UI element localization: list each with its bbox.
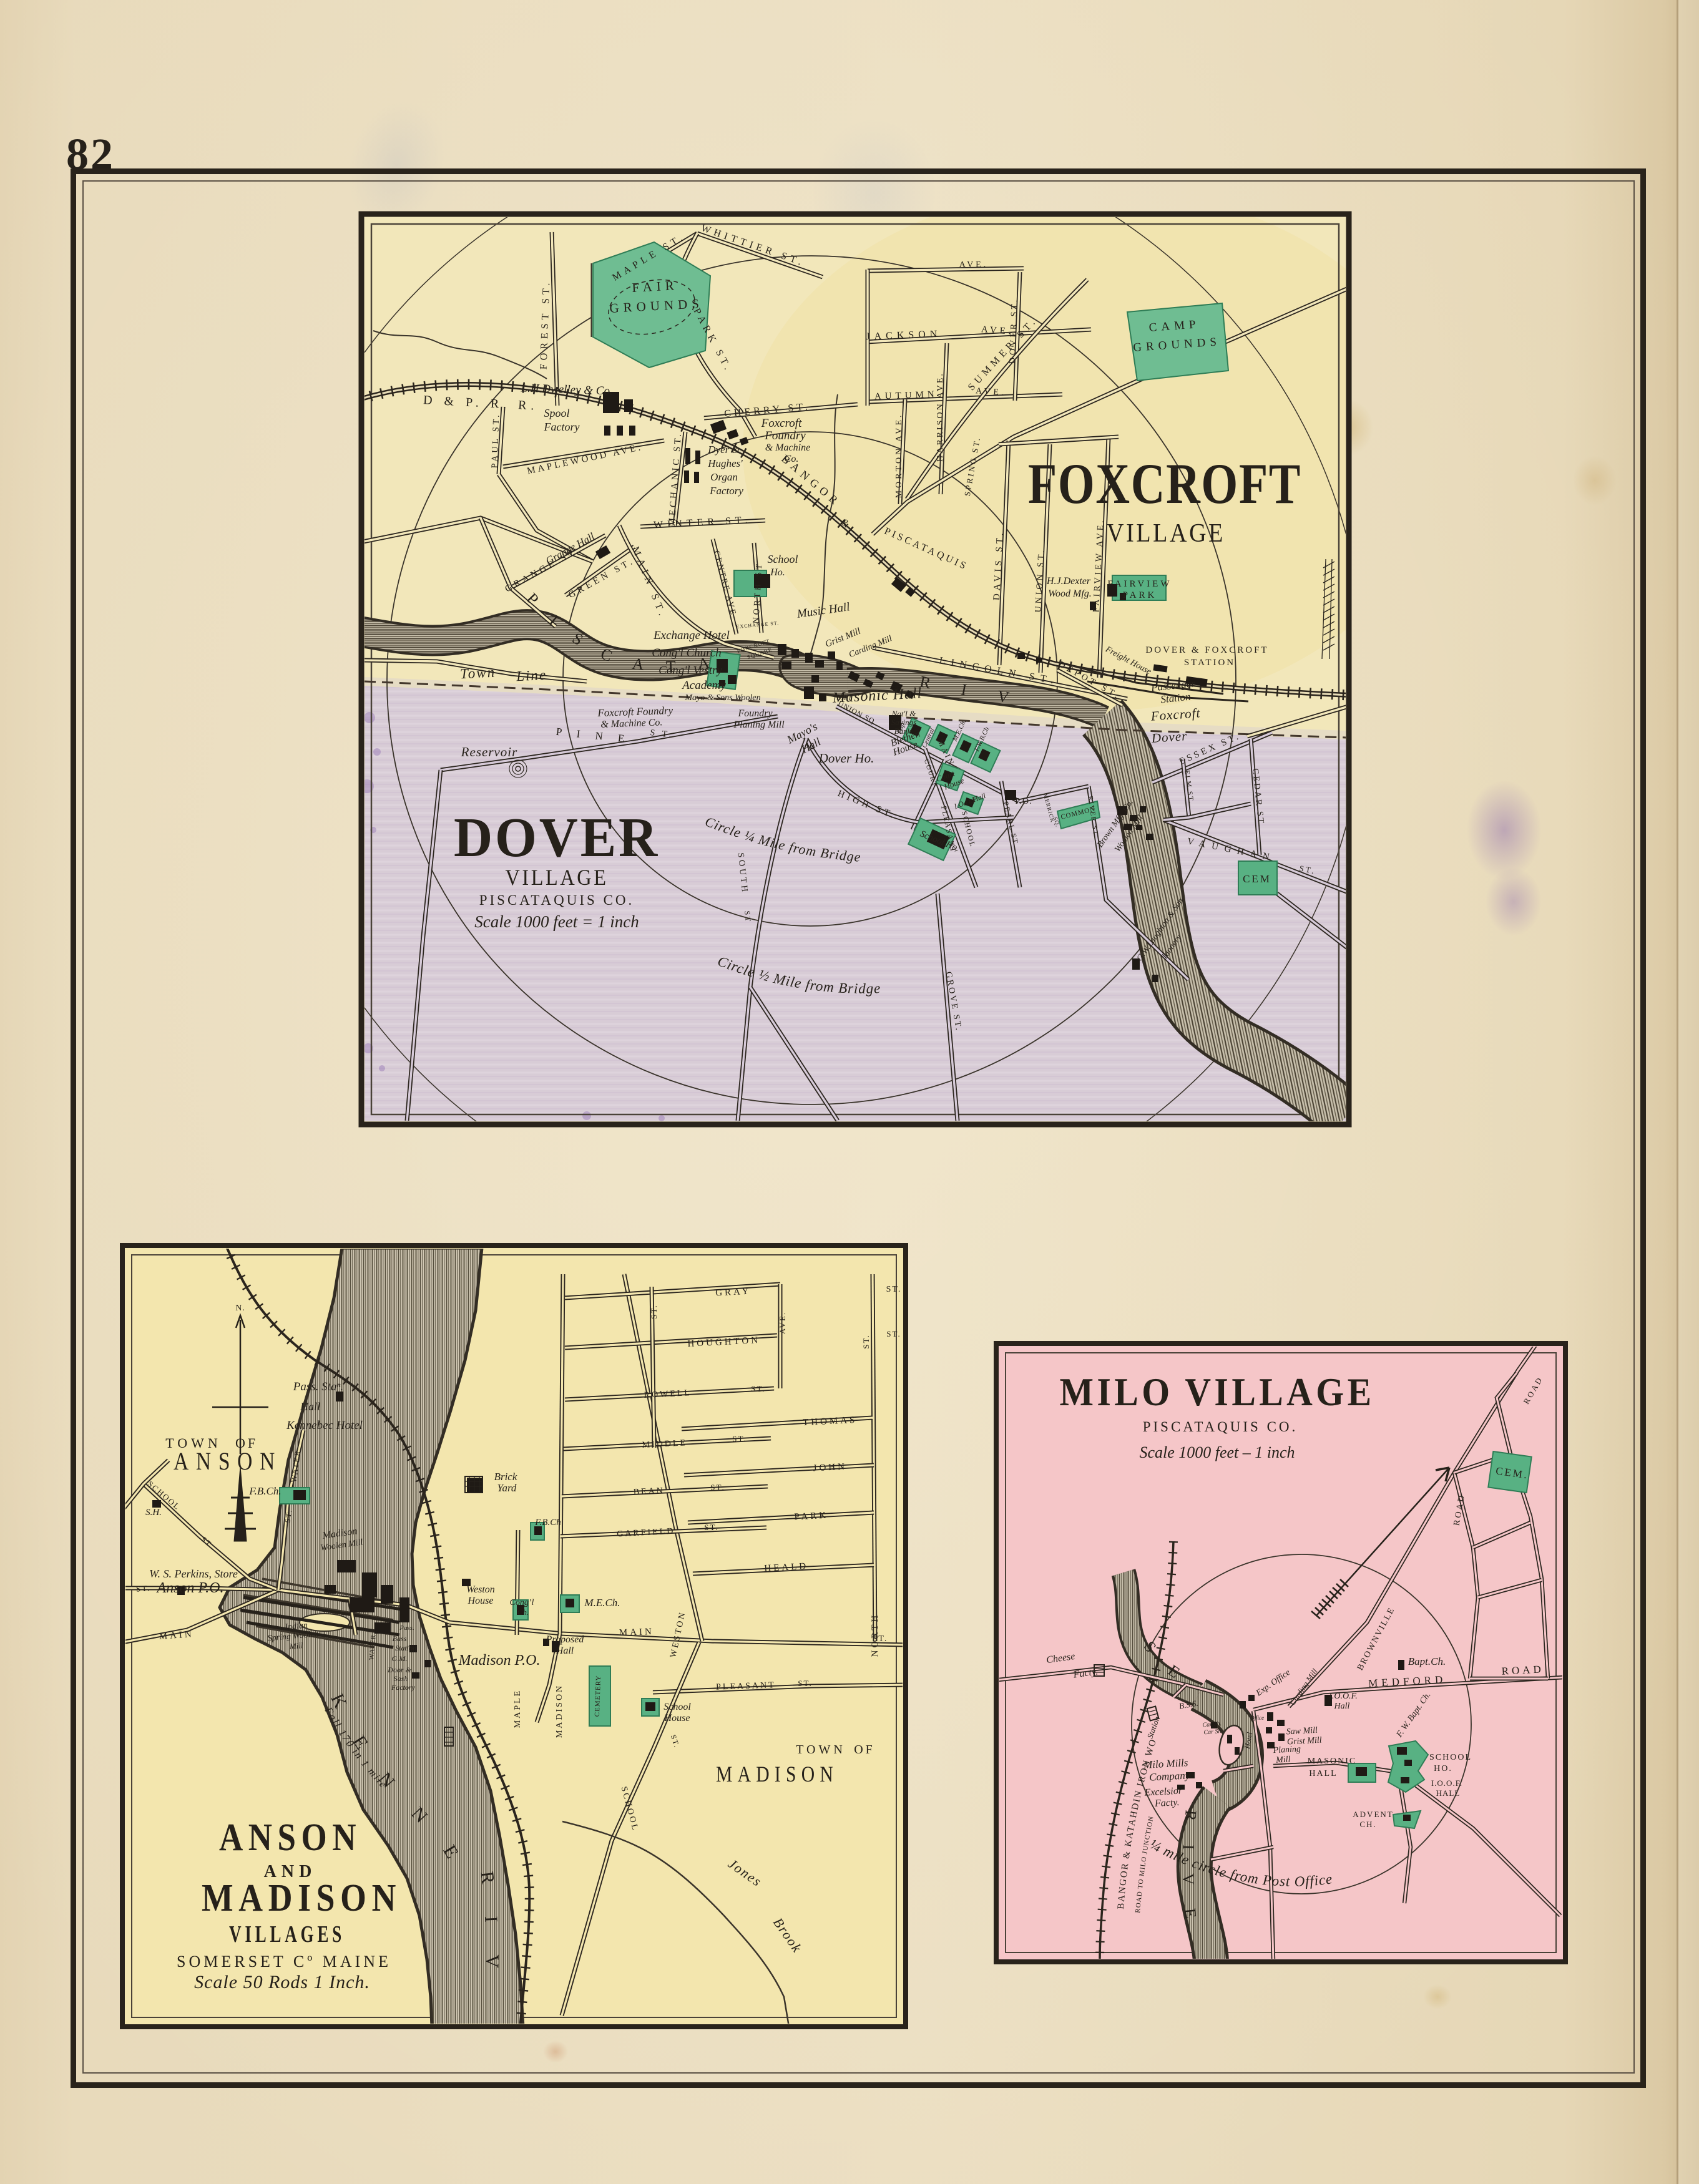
svg-text:CEMETERY: CEMETERY — [594, 1675, 602, 1717]
svg-text:AVE.: AVE. — [778, 1312, 787, 1334]
svg-text:Cong’l: Cong’l — [510, 1598, 534, 1607]
svg-text:Pass. Staⁿ.: Pass. Staⁿ. — [293, 1380, 343, 1393]
svg-text:HALL: HALL — [1436, 1788, 1461, 1798]
svg-text:AVE.: AVE. — [959, 260, 988, 270]
svg-text:JOHN: JOHN — [813, 1462, 847, 1474]
svg-text:MADISON: MADISON — [202, 1877, 401, 1919]
svg-text:Nat'l &: Nat'l & — [891, 709, 916, 718]
svg-text:STATION: STATION — [1184, 658, 1235, 668]
svg-text:ST: ST — [743, 910, 753, 924]
svg-text:DOVER & FOXCROFT: DOVER & FOXCROFT — [1145, 645, 1268, 655]
svg-text:ST.: ST. — [886, 1329, 901, 1338]
svg-text:Station: Station — [395, 1644, 416, 1652]
svg-text:Ho.: Ho. — [770, 567, 785, 578]
svg-text:OF: OF — [854, 1743, 875, 1757]
svg-text:P.O.: P.O. — [1015, 797, 1032, 806]
svg-text:CEM: CEM — [1243, 873, 1271, 885]
svg-text:G.M.: G.M. — [392, 1654, 408, 1663]
svg-text:Foundry: Foundry — [764, 429, 806, 442]
svg-text:Saw Mill: Saw Mill — [1286, 1726, 1318, 1737]
svg-text:Door &: Door & — [387, 1665, 411, 1674]
svg-text:ANSON: ANSON — [174, 1447, 282, 1475]
svg-text:Yard: Yard — [497, 1482, 517, 1494]
svg-text:ST.: ST. — [861, 1334, 871, 1348]
svg-text:Factory: Factory — [544, 421, 580, 433]
svg-text:Planing Mill: Planing Mill — [733, 719, 785, 730]
svg-text:Exchange Hotel: Exchange Hotel — [653, 629, 730, 642]
svg-text:I.O.O.F.: I.O.O.F. — [1431, 1778, 1462, 1788]
svg-text:FAIRVIEW: FAIRVIEW — [1107, 579, 1172, 589]
svg-text:Bass: Bass — [393, 1634, 407, 1643]
svg-text:Scale 1000 feet = 1 inch: Scale 1000 feet = 1 inch — [474, 912, 639, 931]
svg-text:ST.: ST. — [710, 1483, 725, 1492]
svg-text:Ch.: Ch. — [517, 1607, 529, 1617]
svg-text:Mill: Mill — [288, 1640, 303, 1651]
svg-text:Organ: Organ — [710, 471, 738, 483]
svg-text:ANSON: ANSON — [219, 1816, 361, 1859]
svg-text:Dyer &: Dyer & — [707, 444, 740, 456]
svg-text:Dover: Dover — [1150, 728, 1188, 746]
svg-text:Town: Town — [459, 665, 496, 682]
svg-text:Office: Office — [1250, 1715, 1264, 1721]
svg-text:Foundry: Foundry — [737, 708, 773, 719]
svg-text:PISCATAQUIS CO.: PISCATAQUIS CO. — [1143, 1419, 1298, 1435]
svg-text:Wood Mfg.: Wood Mfg. — [1048, 588, 1092, 599]
svg-text:PARK: PARK — [794, 1511, 828, 1523]
svg-text:ST.: ST. — [136, 1583, 151, 1593]
svg-text:& Machine: & Machine — [765, 442, 810, 453]
svg-text:FOXCROFT: FOXCROFT — [1028, 452, 1301, 515]
svg-text:DOVER: DOVER — [454, 807, 660, 869]
svg-text:Hall: Hall — [1334, 1702, 1350, 1711]
svg-text:Company: Company — [1149, 1769, 1191, 1783]
svg-text:Facty.: Facty. — [1154, 1797, 1180, 1809]
svg-text:VILLAGE: VILLAGE — [506, 865, 609, 890]
svg-text:Sash: Sash — [394, 1674, 408, 1683]
svg-text:SOMERSET Cº MAINE: SOMERSET Cº MAINE — [177, 1952, 391, 1971]
svg-text:F.B.Ch.: F.B.Ch. — [248, 1485, 281, 1497]
svg-text:N.: N. — [235, 1304, 245, 1313]
svg-text:Bapt.Ch.: Bapt.Ch. — [1408, 1655, 1446, 1667]
svg-text:Reservoir: Reservoir — [461, 744, 518, 759]
svg-text:Mayo & Sons Woolen: Mayo & Sons Woolen — [684, 693, 760, 703]
svg-text:Brick: Brick — [494, 1471, 517, 1483]
svg-text:MADISON: MADISON — [716, 1762, 838, 1787]
svg-text:VILLAGE: VILLAGE — [1107, 519, 1225, 548]
svg-text:Excelsior: Excelsior — [1143, 1785, 1183, 1798]
svg-text:Foxcroft: Foxcroft — [761, 417, 802, 430]
svg-text:S.H.: S.H. — [145, 1508, 162, 1518]
svg-text:School: School — [663, 1702, 691, 1712]
svg-text:Anson P.O.: Anson P.O. — [156, 1580, 224, 1596]
svg-text:Madison P.O.: Madison P.O. — [458, 1652, 541, 1669]
svg-text:Planing: Planing — [1272, 1745, 1301, 1755]
svg-text:CH.: CH. — [1359, 1820, 1376, 1829]
svg-text:HARRISON AVE.: HARRISON AVE. — [936, 372, 945, 462]
svg-text:House: House — [468, 1596, 494, 1606]
svg-text:FAIR: FAIR — [632, 278, 678, 295]
svg-text:M.E.Ch.: M.E.Ch. — [584, 1597, 620, 1609]
svg-text:PAUL ST.: PAUL ST. — [490, 412, 501, 469]
svg-text:House: House — [664, 1713, 690, 1723]
svg-text:W. S. Perkins, Store: W. S. Perkins, Store — [149, 1567, 238, 1580]
svg-text:Mill: Mill — [1275, 1755, 1291, 1765]
svg-text:Hughes': Hughes' — [707, 457, 743, 469]
svg-text:TOWN: TOWN — [796, 1743, 846, 1757]
svg-text:ROAD: ROAD — [1501, 1663, 1544, 1677]
svg-text:School: School — [768, 553, 798, 565]
svg-text:Cong'l Vestry: Cong'l Vestry — [659, 664, 722, 677]
svg-text:MASONIC: MASONIC — [1308, 1757, 1357, 1766]
svg-text:Scale 50 Rods 1 Inch.: Scale 50 Rods 1 Inch. — [194, 1972, 370, 1992]
svg-text:SCHOOL: SCHOOL — [1429, 1753, 1472, 1762]
svg-text:VILLAGES: VILLAGES — [229, 1921, 345, 1948]
svg-text:Pass.: Pass. — [399, 1624, 414, 1632]
svg-text:I.O.O.F.: I.O.O.F. — [1328, 1692, 1358, 1701]
svg-text:ST.: ST. — [732, 1434, 747, 1443]
svg-text:Milo Mills: Milo Mills — [1143, 1757, 1189, 1771]
svg-text:Weston: Weston — [466, 1584, 495, 1595]
svg-text:Cong'l Church: Cong'l Church — [652, 646, 722, 660]
svg-text:HALL: HALL — [1309, 1769, 1337, 1778]
svg-text:Hall: Hall — [300, 1400, 320, 1413]
svg-text:Factory: Factory — [391, 1683, 416, 1692]
svg-text:Academy: Academy — [681, 679, 726, 692]
svg-text:PARK: PARK — [1123, 590, 1157, 600]
svg-text:MAPLE: MAPLE — [513, 1689, 522, 1728]
svg-text:ADVENT: ADVENT — [1353, 1810, 1393, 1819]
svg-text:Kennebec Hotel: Kennebec Hotel — [286, 1419, 363, 1432]
svg-text:ST.: ST. — [704, 1523, 718, 1532]
svg-text:Scale 1000 feet – 1 inch: Scale 1000 feet – 1 inch — [1139, 1443, 1295, 1461]
svg-text:MADISON: MADISON — [555, 1684, 564, 1738]
svg-text:F.B.Ch: F.B.Ch — [534, 1518, 561, 1528]
svg-text:H.J.Dexter: H.J.Dexter — [1046, 576, 1091, 587]
svg-text:GRAY: GRAY — [715, 1287, 752, 1299]
svg-text:MILO VILLAGE: MILO VILLAGE — [1060, 1370, 1375, 1414]
svg-text:Dover Ho.: Dover Ho. — [818, 751, 874, 766]
svg-text:HO.: HO. — [1434, 1764, 1452, 1773]
svg-text:Line: Line — [516, 667, 547, 685]
svg-text:ST.: ST. — [649, 1304, 659, 1319]
svg-text:PISCATAQUIS CO.: PISCATAQUIS CO. — [479, 892, 635, 908]
svg-text:Factory: Factory — [709, 485, 743, 497]
svg-text:ST.: ST. — [886, 1285, 902, 1294]
svg-text:Co.: Co. — [785, 454, 799, 464]
svg-text:ST.: ST. — [751, 1384, 765, 1393]
svg-text:ST.: ST. — [873, 1634, 888, 1644]
svg-text:BEAN: BEAN — [633, 1486, 665, 1498]
svg-text:ST.: ST. — [798, 1679, 812, 1688]
svg-text:Proposed: Proposed — [546, 1634, 585, 1645]
svg-text:MAIN: MAIN — [619, 1627, 655, 1638]
svg-text:MORTON AVE.: MORTON AVE. — [894, 413, 904, 499]
svg-text:Spool: Spool — [544, 407, 569, 419]
svg-text:Hall: Hall — [556, 1645, 574, 1656]
